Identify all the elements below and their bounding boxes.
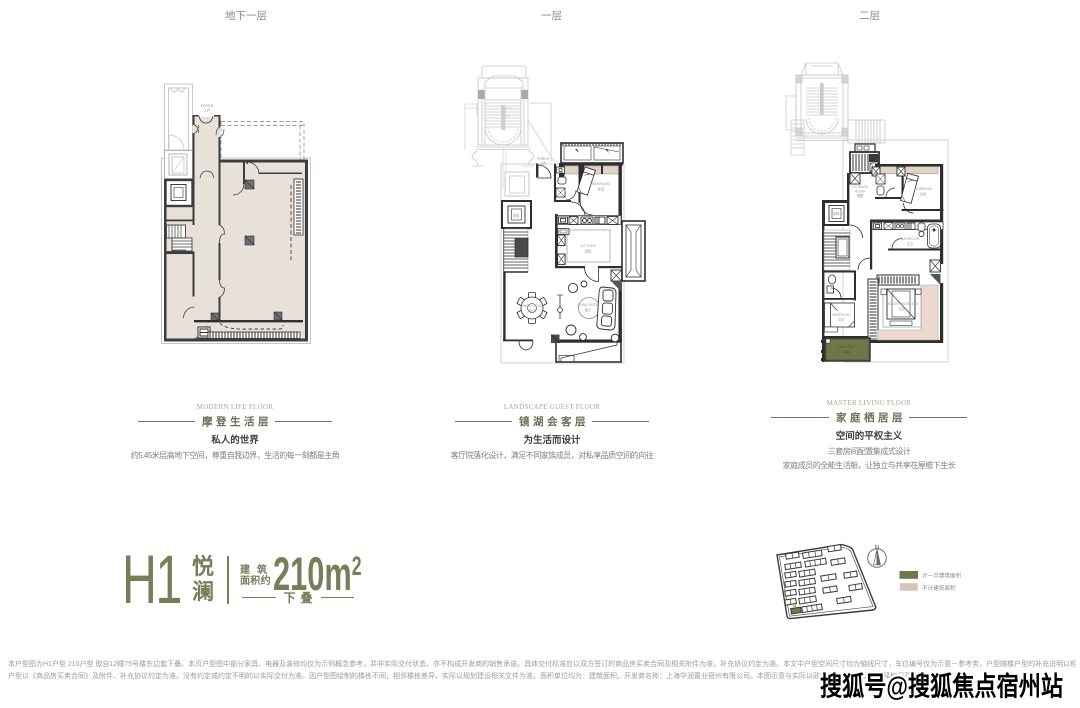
svg-text:STORAGE: STORAGE bbox=[852, 185, 868, 189]
svg-text:储藏: 储藏 bbox=[857, 193, 864, 198]
svg-text:主卧: 主卧 bbox=[899, 306, 906, 311]
svg-text:不计建筑面积: 不计建筑面积 bbox=[922, 584, 956, 592]
svg-text:KITCHEN: KITCHEN bbox=[581, 244, 596, 248]
svg-text:LIVING ROOM: LIVING ROOM bbox=[577, 303, 600, 307]
svg-text:次卧: 次卧 bbox=[838, 317, 845, 322]
svg-text:BEDROOM: BEDROOM bbox=[832, 313, 849, 317]
svg-text:DINING ROOM: DINING ROOM bbox=[520, 304, 544, 308]
svg-text:BEDROOM: BEDROOM bbox=[592, 182, 610, 186]
svg-text:ROOM: ROOM bbox=[855, 190, 865, 194]
svg-text:次卧: 次卧 bbox=[920, 192, 927, 197]
svg-text:BEDROOM: BEDROOM bbox=[914, 187, 932, 191]
svg-text:BATHROOM: BATHROOM bbox=[901, 237, 920, 241]
svg-text:电梯: 电梯 bbox=[513, 213, 520, 218]
svg-text:计一半建筑面积: 计一半建筑面积 bbox=[922, 572, 962, 580]
svg-text:FOYER: FOYER bbox=[201, 104, 214, 108]
svg-text:卧室: 卧室 bbox=[598, 187, 605, 192]
svg-text:电梯: 电梯 bbox=[833, 211, 840, 216]
svg-text:餐厅: 餐厅 bbox=[529, 309, 536, 314]
svg-text:露台: 露台 bbox=[844, 349, 850, 354]
svg-text:BALCONY: BALCONY bbox=[839, 345, 856, 349]
svg-text:PORCH: PORCH bbox=[537, 157, 550, 161]
svg-text:客厅: 客厅 bbox=[585, 308, 592, 313]
svg-text:MASTER BEDROOM: MASTER BEDROOM bbox=[886, 302, 918, 306]
svg-text:入户: 入户 bbox=[204, 108, 211, 113]
svg-text:厨房: 厨房 bbox=[585, 249, 592, 254]
svg-text:入户: 入户 bbox=[540, 161, 547, 166]
svg-text:搜狐号@搜狐焦点宿州站: 搜狐号@搜狐焦点宿州站 bbox=[820, 672, 1063, 702]
svg-text:主卫: 主卫 bbox=[907, 241, 914, 246]
